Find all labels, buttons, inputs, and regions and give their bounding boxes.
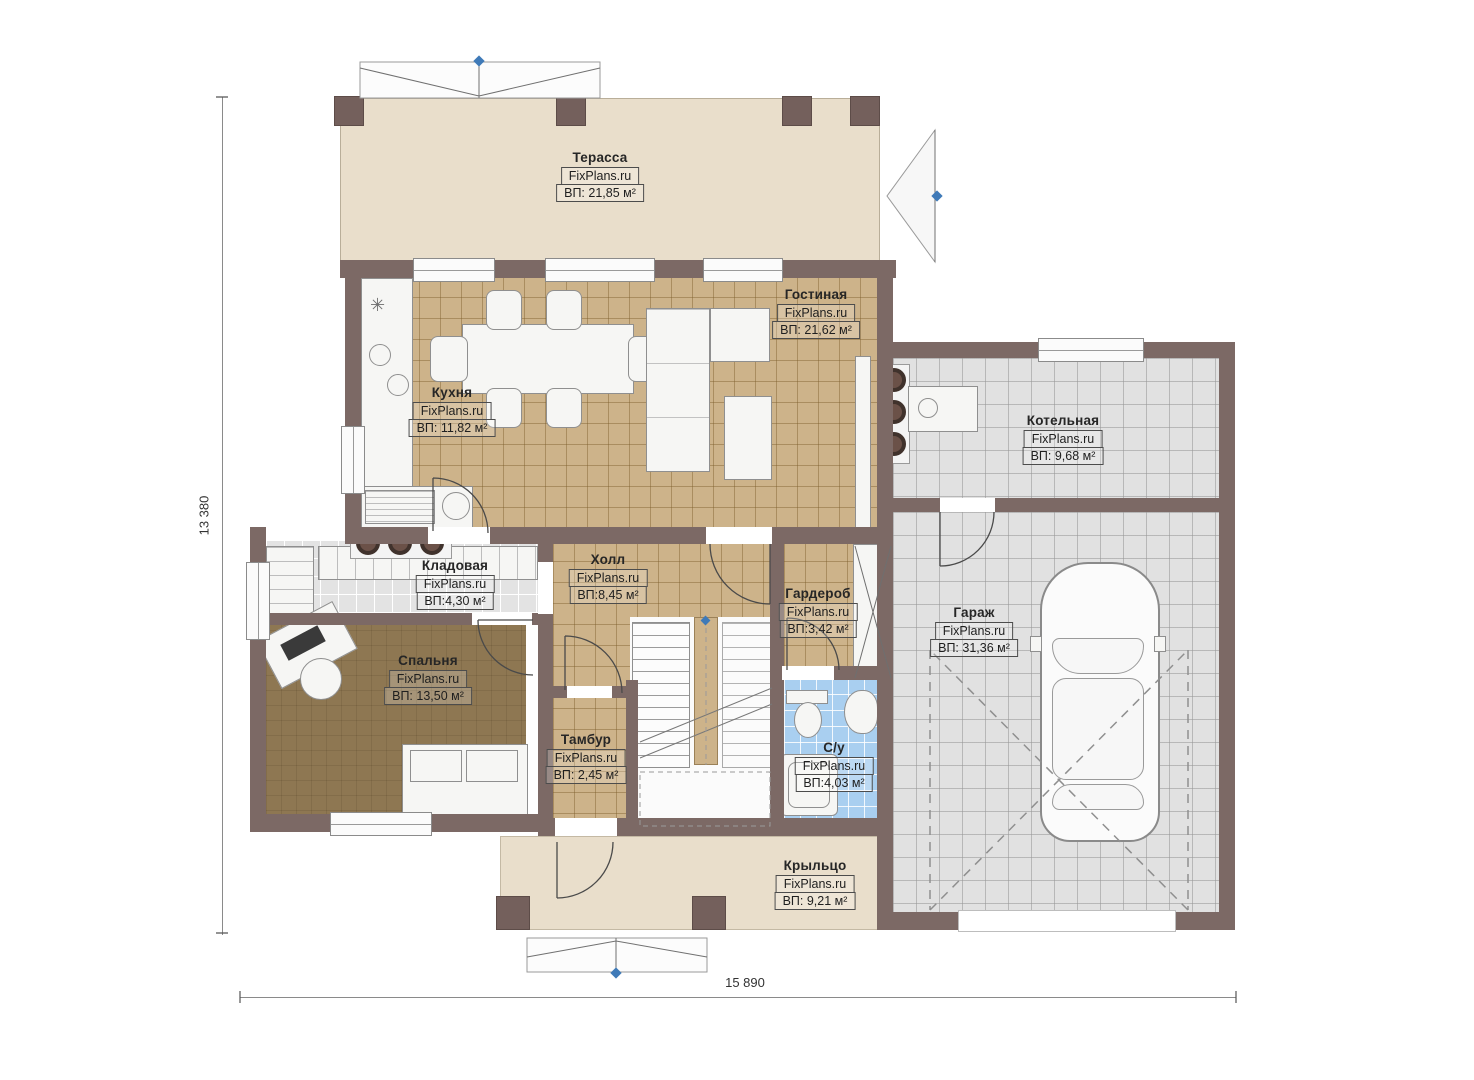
- room-area: ВП: 21,62 м²: [772, 321, 860, 339]
- wall-segment: [770, 680, 784, 832]
- door-opening: [472, 613, 532, 625]
- window: [545, 258, 655, 282]
- dining-chair: [486, 290, 522, 330]
- car-mirror: [1030, 636, 1042, 652]
- wall-segment: [877, 342, 893, 930]
- room-label-wardrobe: Гардероб FixPlans.ru ВП:3,42 м²: [779, 586, 858, 638]
- garage-gate-opening: [958, 910, 1176, 932]
- stair-flight-right: [722, 622, 776, 768]
- stair-stringer: [694, 617, 718, 765]
- room-name: Терасса: [556, 150, 644, 165]
- kitchen-sink-bowl: [369, 344, 391, 366]
- room-label-tambour: Тамбур FixPlans.ru ВП: 2,45 м²: [546, 732, 627, 784]
- stair-flight-left: [632, 622, 690, 768]
- car-mirror: [1154, 636, 1166, 652]
- kitchen-sink-bowl: [387, 374, 409, 396]
- terrace-pillar: [556, 96, 586, 126]
- storage-cabinet: [266, 546, 314, 616]
- room-brand: FixPlans.ru: [935, 622, 1014, 640]
- room-label-porch: Крыльцо FixPlans.ru ВП: 9,21 м²: [775, 858, 856, 910]
- bay-window: [887, 130, 935, 262]
- room-label-bedroom: Спальня FixPlans.ru ВП: 13,50 м²: [384, 653, 472, 705]
- entrance-door-opening: [555, 818, 617, 836]
- room-brand: FixPlans.ru: [779, 603, 858, 621]
- room-area: ВП:4,03 м²: [795, 774, 872, 792]
- room-name: С/у: [795, 740, 874, 755]
- sofa-seat: [646, 308, 710, 472]
- porch-pillar: [692, 896, 726, 930]
- desk-chair: [300, 658, 342, 700]
- room-brand: FixPlans.ru: [547, 749, 626, 767]
- door-opening: [706, 527, 772, 544]
- room-name: Гостиная: [772, 287, 860, 302]
- sofa-cushion: [410, 750, 462, 782]
- room-label-kitchen: Кухня FixPlans.ru ВП: 11,82 м²: [409, 385, 496, 437]
- dimension-line-horizontal: [240, 997, 1236, 998]
- room-name: Гараж: [930, 605, 1018, 620]
- tv-panel: [855, 356, 871, 548]
- room-brand: FixPlans.ru: [416, 575, 495, 593]
- dimension-line-vertical: [222, 97, 223, 935]
- room-area: ВП:4,30 м²: [416, 592, 493, 610]
- wall-segment: [345, 260, 361, 544]
- room-area: ВП: 13,50 м²: [384, 687, 472, 705]
- room-brand: FixPlans.ru: [795, 757, 874, 775]
- sofa-chaise: [710, 308, 770, 362]
- window: [330, 812, 432, 836]
- door-opening: [782, 666, 834, 680]
- room-label-terrace: Терасса FixPlans.ru ВП: 21,85 м²: [556, 150, 644, 202]
- room-name: Тамбур: [546, 732, 627, 747]
- room-label-living: Гостиная FixPlans.ru ВП: 21,62 м²: [772, 287, 860, 339]
- room-area: ВП: 31,36 м²: [930, 639, 1018, 657]
- room-label-bathroom: С/у FixPlans.ru ВП:4,03 м²: [795, 740, 874, 792]
- porch-canopy: [527, 938, 707, 972]
- room-area: ВП: 2,45 м²: [546, 766, 627, 784]
- room-area: ВП: 11,82 м²: [409, 419, 496, 437]
- room-brand: FixPlans.ru: [413, 402, 492, 420]
- sofa-cushion: [466, 750, 518, 782]
- boiler-dial: [918, 398, 938, 418]
- room-area: ВП: 9,68 м²: [1023, 447, 1104, 465]
- room-name: Кухня: [409, 385, 496, 400]
- room-name: Кладовая: [416, 558, 495, 573]
- room-area: ВП:8,45 м²: [569, 586, 646, 604]
- kitchen-asterisk-icon: ✳: [370, 296, 385, 314]
- wall-segment: [612, 686, 630, 698]
- room-label-hall: Холл FixPlans.ru ВП:8,45 м²: [569, 552, 648, 604]
- window: [246, 562, 270, 640]
- room-brand: FixPlans.ru: [776, 875, 855, 893]
- terrace-pillar: [334, 96, 364, 126]
- room-name: Спальня: [384, 653, 472, 668]
- dining-chair: [546, 388, 582, 428]
- toilet-bowl: [794, 702, 822, 738]
- terrace-canopy: [360, 62, 600, 98]
- room-name: Гардероб: [779, 586, 858, 601]
- door-opening: [538, 562, 553, 614]
- room-brand: FixPlans.ru: [561, 167, 640, 185]
- bathroom-sink: [844, 690, 878, 734]
- car-rear-window: [1052, 784, 1144, 810]
- dishwasher: [365, 490, 435, 524]
- room-name: Крыльцо: [775, 858, 856, 873]
- room-brand: FixPlans.ru: [569, 569, 648, 587]
- coffee-table: [724, 396, 772, 480]
- terrace-pillar: [782, 96, 812, 126]
- room-brand: FixPlans.ru: [389, 670, 468, 688]
- room-brand: FixPlans.ru: [1024, 430, 1103, 448]
- room-label-storage: Кладовая FixPlans.ru ВП:4,30 м²: [416, 558, 495, 610]
- room-name: Холл: [569, 552, 648, 567]
- wall-segment: [1219, 342, 1235, 930]
- room-area: ВП: 21,85 м²: [556, 184, 644, 202]
- room-name: Котельная: [1023, 413, 1104, 428]
- door-opening: [567, 686, 612, 698]
- room-area: ВП: 9,21 м²: [775, 892, 856, 910]
- room-area: ВП:3,42 м²: [779, 620, 856, 638]
- dimension-width: 15 890: [710, 975, 780, 990]
- window: [341, 426, 365, 494]
- door-opening: [428, 527, 490, 544]
- dimension-height: 13 380: [197, 486, 212, 546]
- room-label-boiler: Котельная FixPlans.ru ВП: 9,68 м²: [1023, 413, 1104, 465]
- car-roof: [1052, 678, 1144, 780]
- wall-segment: [553, 686, 567, 698]
- room-brand: FixPlans.ru: [777, 304, 856, 322]
- room-label-garage: Гараж FixPlans.ru ВП: 31,36 м²: [930, 605, 1018, 657]
- car-windshield: [1052, 638, 1144, 674]
- door-opening: [940, 498, 995, 512]
- porch-pillar: [496, 896, 530, 930]
- terrace-pillar: [850, 96, 880, 126]
- floor-plan: ✳: [0, 0, 1474, 1080]
- window: [413, 258, 495, 282]
- window: [703, 258, 783, 282]
- wall-segment: [626, 680, 638, 832]
- kitchen-round-sink: [442, 492, 470, 520]
- dining-chair: [430, 336, 468, 382]
- window: [1038, 338, 1144, 362]
- dining-table: [462, 324, 634, 394]
- dining-chair: [546, 290, 582, 330]
